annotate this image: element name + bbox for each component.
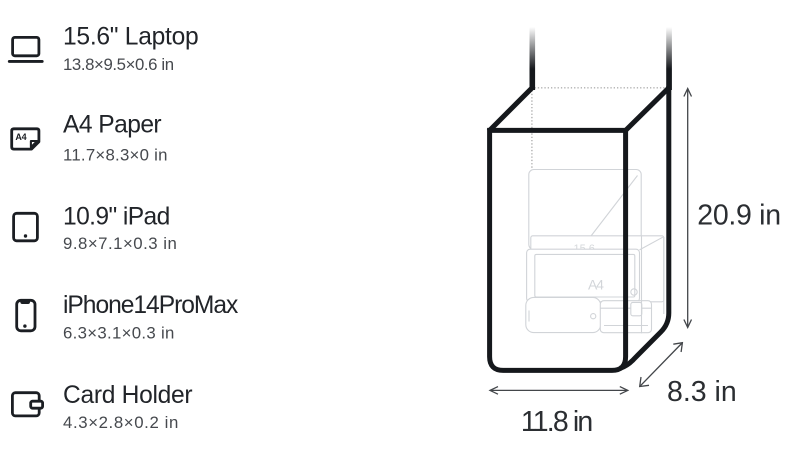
svg-text:A4 Paper: A4 Paper bbox=[63, 112, 161, 139]
svg-text:10.9" iPad: 10.9" iPad bbox=[63, 203, 170, 230]
svg-text:A4: A4 bbox=[588, 277, 604, 293]
svg-text:15.6" Laptop: 15.6" Laptop bbox=[63, 23, 198, 50]
svg-text:20.9 in: 20.9 in bbox=[697, 199, 780, 231]
svg-text:8.3 in: 8.3 in bbox=[667, 376, 737, 408]
svg-text:9.8×7.1×0.3 in: 9.8×7.1×0.3 in bbox=[63, 234, 177, 253]
svg-text:Card Holder: Card Holder bbox=[63, 382, 192, 409]
svg-text:6.3×3.1×0.3 in: 6.3×3.1×0.3 in bbox=[63, 323, 175, 342]
svg-text:iPhone14ProMax: iPhone14ProMax bbox=[63, 292, 239, 319]
svg-text:11.7×8.3×0 in: 11.7×8.3×0 in bbox=[63, 145, 168, 164]
svg-text:4.3×2.8×0.2 in: 4.3×2.8×0.2 in bbox=[63, 413, 179, 432]
svg-text:11.8 in: 11.8 in bbox=[521, 406, 592, 438]
svg-text:13.8×9.5×0.6 in: 13.8×9.5×0.6 in bbox=[63, 55, 174, 74]
svg-text:A4: A4 bbox=[15, 132, 26, 142]
